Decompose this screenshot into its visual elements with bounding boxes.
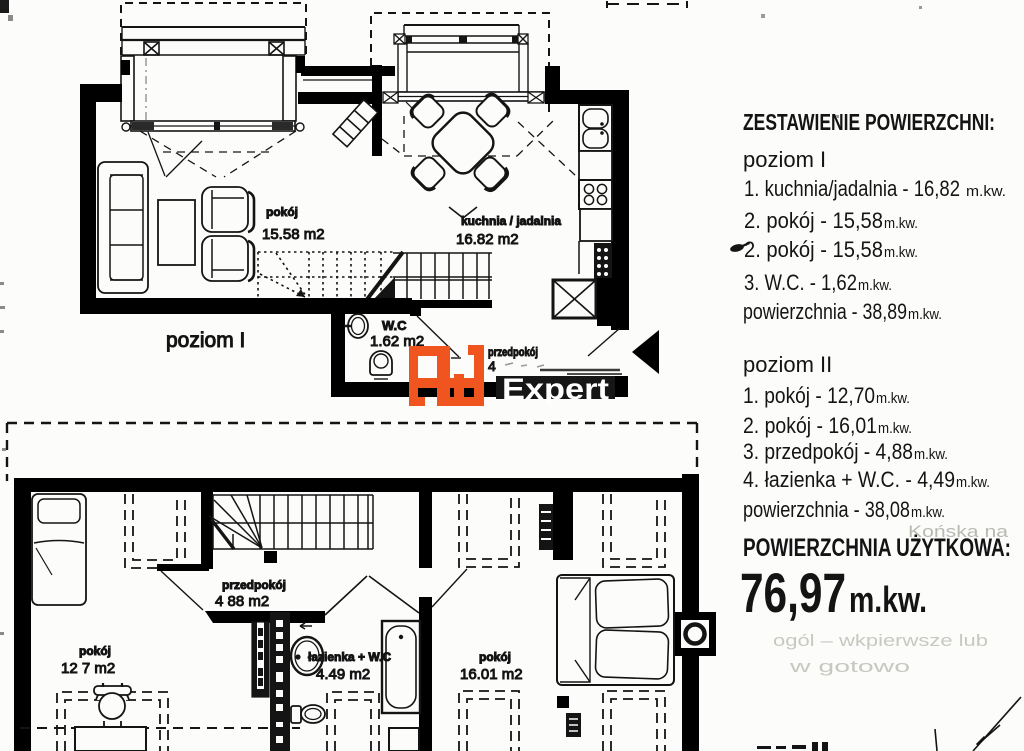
svg-text:ZESTAWIENIE POWIERZCHNI:: ZESTAWIENIE POWIERZCHNI: <box>743 109 995 135</box>
svg-text:m.kw.: m.kw. <box>858 277 892 294</box>
svg-text:pokój: pokój <box>479 650 511 664</box>
svg-text:15.58 m2: 15.58 m2 <box>262 226 325 243</box>
svg-text:1. kuchnia/jadalnia - 16,82: 1. kuchnia/jadalnia - 16,82 <box>744 176 960 201</box>
svg-text:3. W.C. - 1,62: 3. W.C. - 1,62 <box>744 270 857 295</box>
svg-text:2. pokój - 16,01: 2. pokój - 16,01 <box>743 413 877 438</box>
svg-text:łazienka + W.C: łazienka + W.C <box>308 650 391 664</box>
svg-text:przedpokój: przedpokój <box>222 578 286 592</box>
svg-text:m.kw.: m.kw. <box>878 420 912 437</box>
svg-text:kuchnia / jadalnia: kuchnia / jadalnia <box>461 214 561 228</box>
svg-text:m.kw.: m.kw. <box>884 244 918 261</box>
svg-text:16.82 m2: 16.82 m2 <box>456 231 519 248</box>
svg-text:4: 4 <box>488 358 496 374</box>
svg-text:m.kw.: m.kw. <box>884 215 918 232</box>
svg-text:poziom II: poziom II <box>743 352 832 377</box>
svg-text:w gotowo: w gotowo <box>788 657 910 676</box>
svg-text:2. pokój - 15,58: 2. pokój - 15,58 <box>744 208 883 233</box>
svg-text:pokój: pokój <box>79 644 111 658</box>
svg-text:4. łazienka + W.C. - 4,49: 4. łazienka + W.C. - 4,49 <box>743 467 955 492</box>
svg-text:76,97: 76,97 <box>740 561 846 624</box>
svg-text:4 88 m2: 4 88 m2 <box>215 593 269 610</box>
svg-text:4.49 m2: 4.49 m2 <box>316 666 370 683</box>
svg-text:poziom I: poziom I <box>743 147 826 172</box>
svg-text:m.kw.: m.kw. <box>849 579 927 620</box>
svg-text:powierzchnia - 38,89: powierzchnia - 38,89 <box>743 299 907 324</box>
svg-text:3. przedpokój - 4,88: 3. przedpokój - 4,88 <box>743 439 913 464</box>
svg-text:2. pokój - 15,58: 2. pokój - 15,58 <box>744 237 883 262</box>
svg-text:m.kw.: m.kw. <box>908 306 942 323</box>
svg-text:16.01 m2: 16.01 m2 <box>460 666 523 683</box>
svg-text:1. pokój - 12,70: 1. pokój - 12,70 <box>743 383 875 408</box>
svg-text:m.kw.: m.kw. <box>914 446 948 463</box>
svg-text:Końska na: Końska na <box>908 522 1009 541</box>
svg-text:Expert: Expert <box>502 373 609 406</box>
svg-text:m.kw.: m.kw. <box>966 183 1006 200</box>
svg-text:W.C: W.C <box>382 318 407 333</box>
svg-text:m.kw.: m.kw. <box>876 390 910 407</box>
svg-text:12 7 m2: 12 7 m2 <box>61 660 115 677</box>
svg-text:m.kw.: m.kw. <box>956 474 990 491</box>
svg-text:pokój: pokój <box>266 205 298 219</box>
svg-text:powierzchnia - 38,08: powierzchnia - 38,08 <box>743 497 910 522</box>
svg-text:poziom I: poziom I <box>166 329 245 352</box>
svg-text:m.kw.: m.kw. <box>911 504 945 521</box>
svg-text:ogól – wkpierwsze lub: ogól – wkpierwsze lub <box>773 631 988 650</box>
